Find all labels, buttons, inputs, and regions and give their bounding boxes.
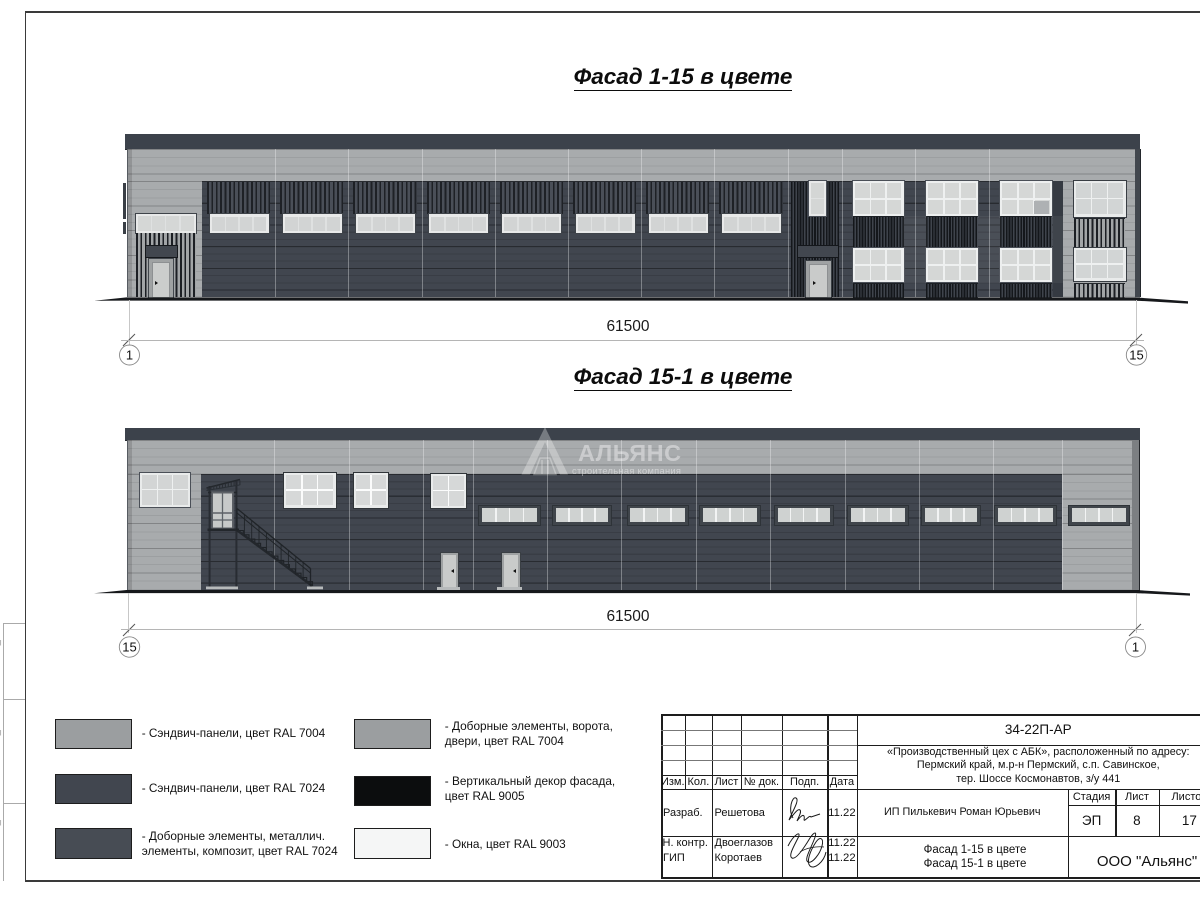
svg-text:1: 1 [126,348,133,363]
svg-text:1: 1 [1132,640,1139,655]
svg-text:15: 15 [122,640,136,655]
svg-text:15: 15 [1129,348,1143,363]
